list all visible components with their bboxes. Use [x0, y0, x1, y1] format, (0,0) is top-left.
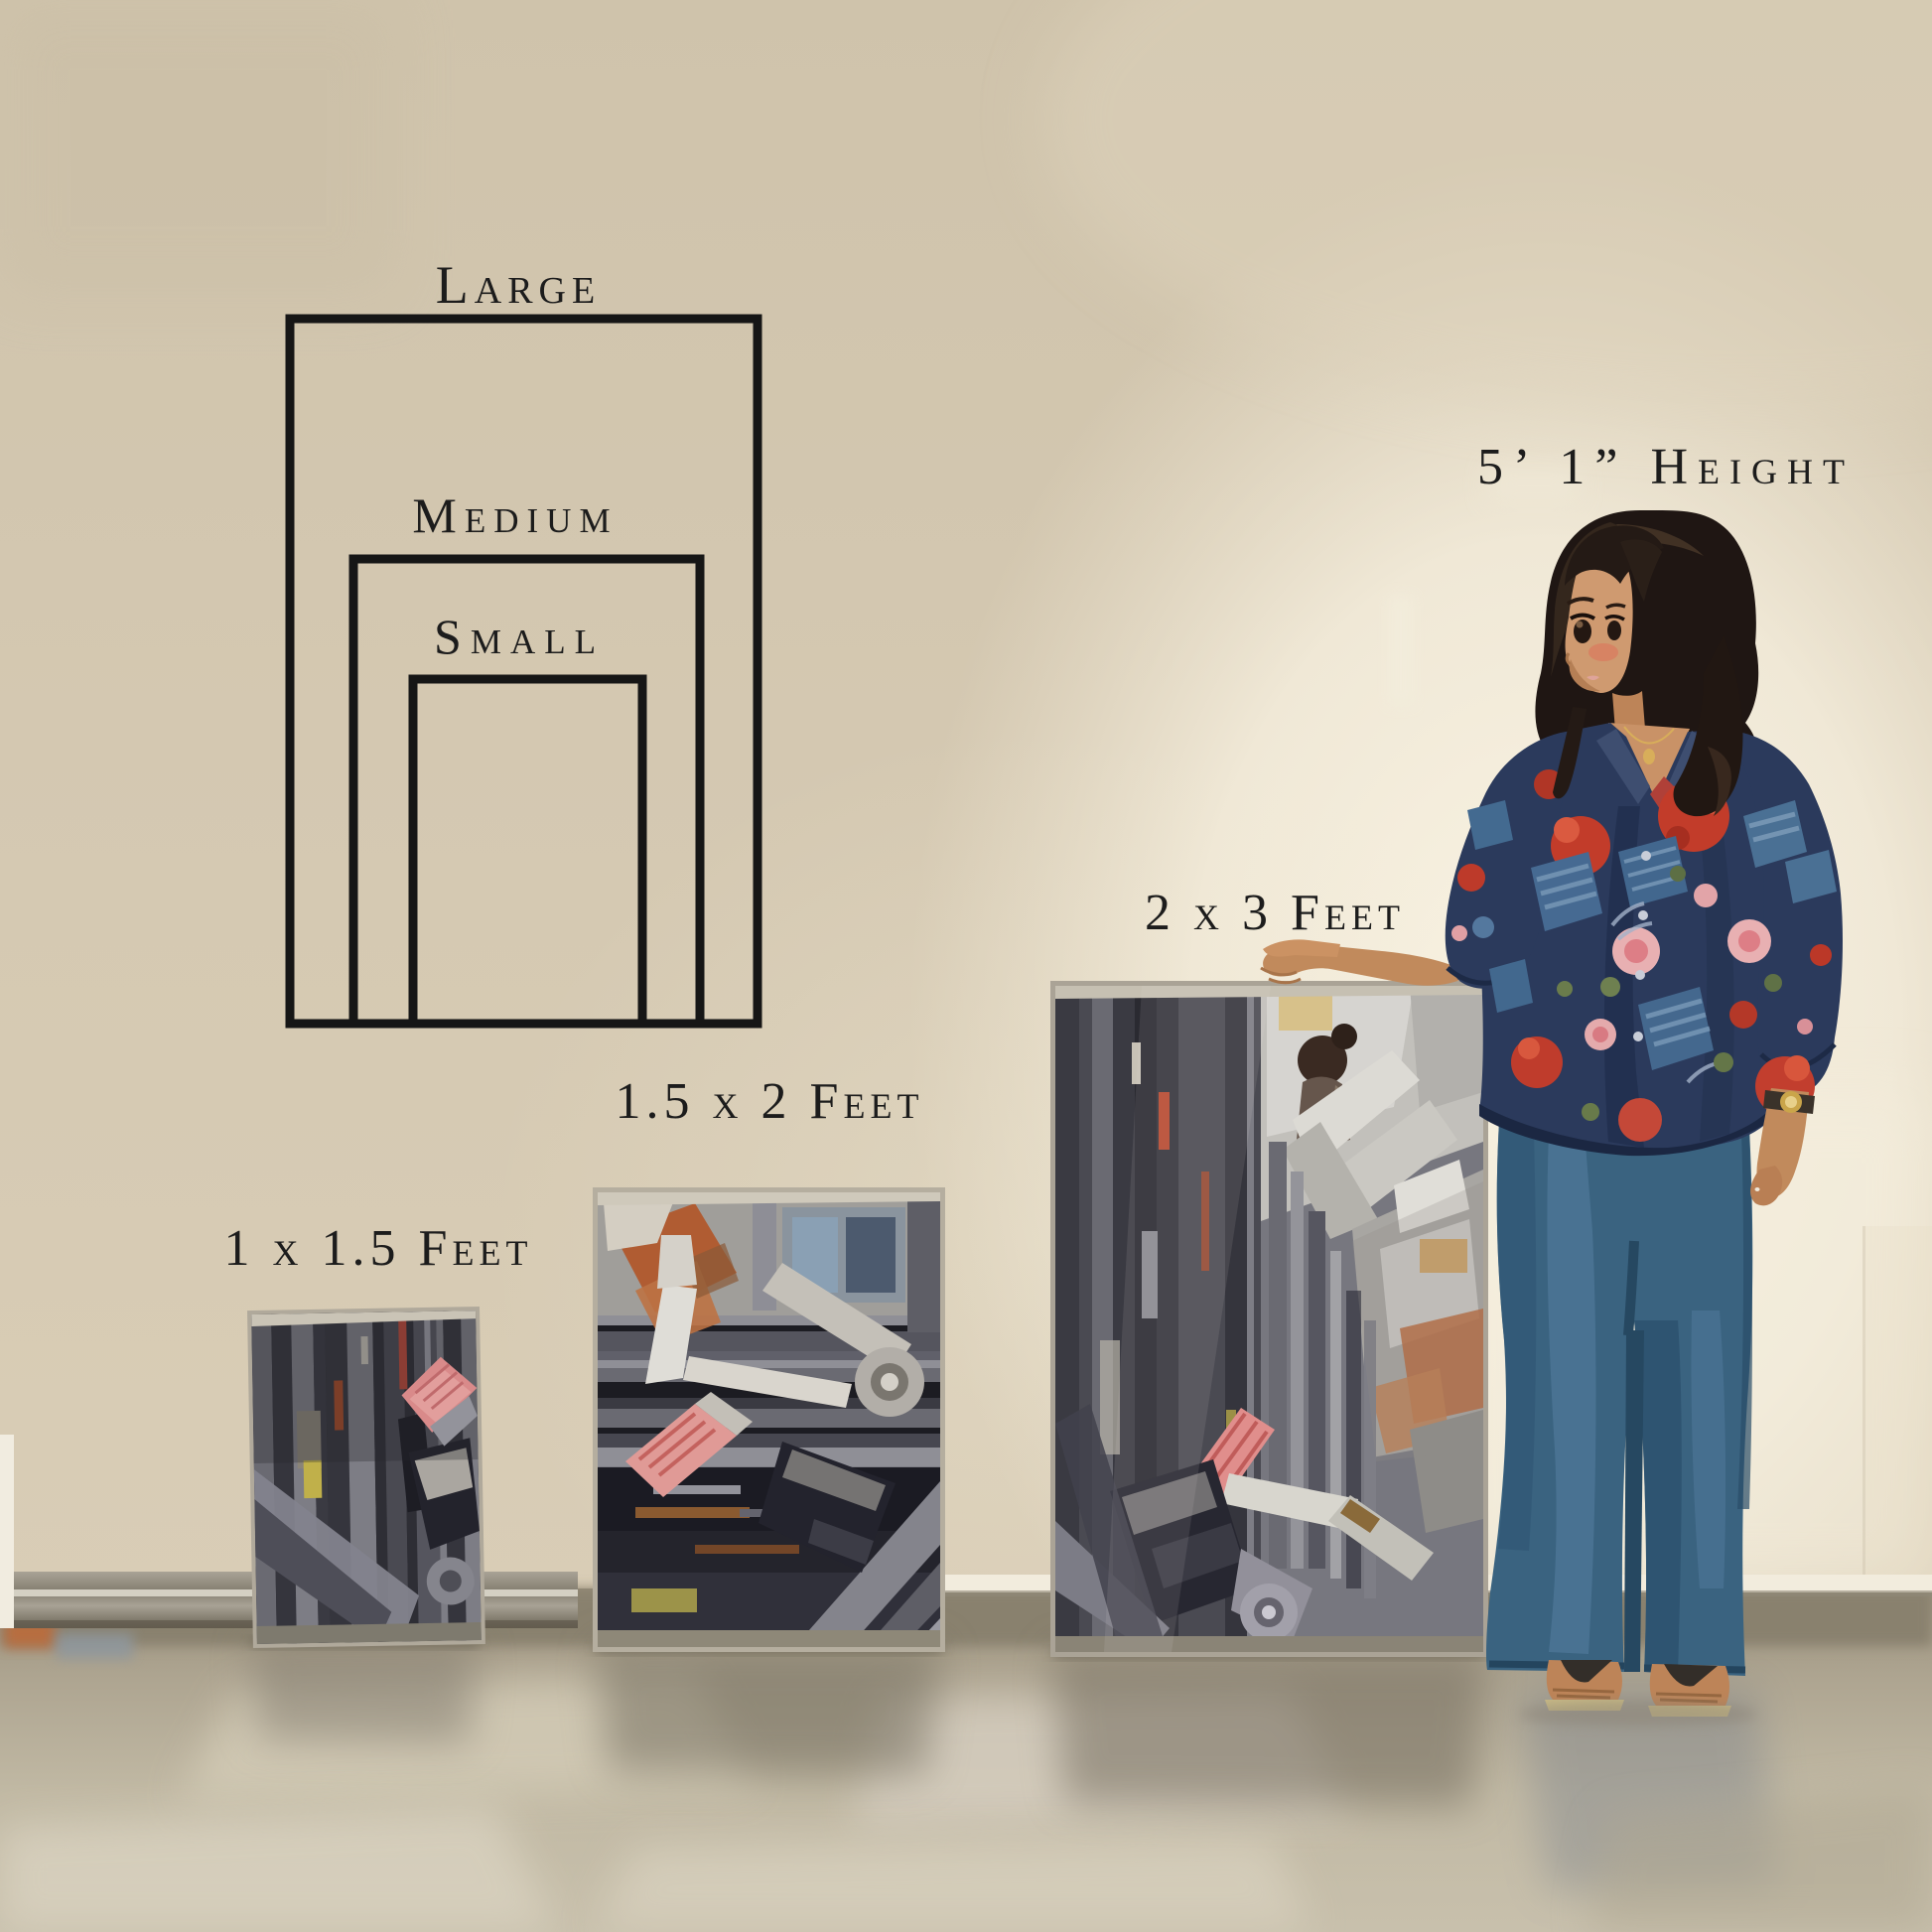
svg-text:Small: Small — [434, 609, 605, 664]
svg-text:2 x 3 Feet: 2 x 3 Feet — [1145, 885, 1405, 941]
svg-text:5’ 1” Height: 5’ 1” Height — [1477, 439, 1855, 495]
svg-text:Medium: Medium — [412, 487, 618, 543]
svg-text:1 x 1.5 Feet: 1 x 1.5 Feet — [224, 1220, 533, 1277]
svg-text:Large: Large — [436, 255, 601, 315]
svg-text:1.5 x 2 Feet: 1.5 x 2 Feet — [616, 1073, 924, 1130]
